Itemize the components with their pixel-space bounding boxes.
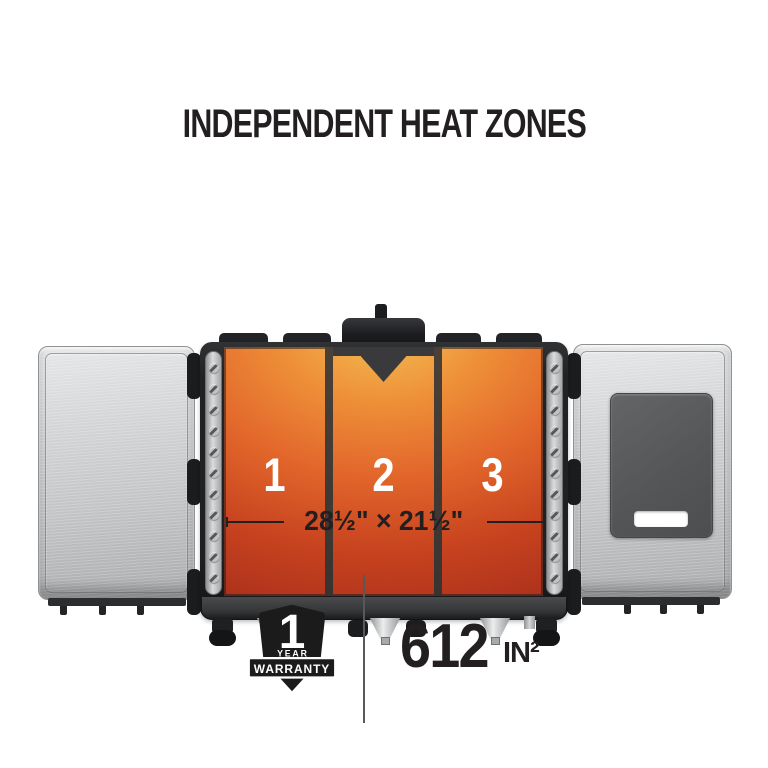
zone-divider — [434, 347, 442, 596]
dimension-tick-right — [543, 517, 545, 527]
griddle-foot — [209, 630, 236, 646]
hinge-tab — [187, 459, 201, 505]
screw-icon — [550, 573, 560, 583]
screw-icon — [209, 426, 219, 436]
screw-icon — [550, 447, 560, 457]
warranty-ribbon-label: WARRANTY — [254, 662, 330, 676]
screw-icon — [209, 489, 219, 499]
screw-icon — [209, 552, 219, 562]
screw-icon — [209, 405, 219, 415]
heat-zone-2: 2 — [333, 347, 434, 596]
page-title: INDEPENDENT HEAT ZONES — [0, 104, 768, 144]
warranty-badge: 1 YEAR WARRANTY — [246, 601, 338, 696]
grease-valve — [366, 618, 404, 639]
screw-icon — [550, 384, 560, 394]
shelf-foot — [697, 605, 704, 614]
screw-icon — [550, 552, 560, 562]
right-shelf-base — [582, 597, 720, 605]
dimension-label: 28½" × 21½" — [0, 506, 768, 537]
zone-number: 1 — [232, 451, 318, 498]
grease-fitting — [524, 616, 535, 629]
zone-number: 2 — [341, 451, 427, 498]
grease-valve-tip — [491, 637, 500, 645]
hinge-tab — [567, 569, 581, 615]
left-shelf-base — [48, 598, 186, 606]
right-screw-rail — [546, 351, 563, 595]
dimension-text: 28½" × 21½" — [304, 506, 463, 537]
left-screw-rail — [205, 351, 222, 595]
screw-icon — [209, 447, 219, 457]
section-divider — [363, 575, 365, 723]
heat-surface: 1 2 3 — [224, 347, 543, 596]
screw-icon — [550, 489, 560, 499]
igniter-knob — [348, 620, 368, 637]
shelf-foot — [624, 605, 631, 614]
screw-icon — [209, 573, 219, 583]
warranty-year-label: YEAR — [277, 648, 309, 658]
page-title-text: INDEPENDENT HEAT ZONES — [182, 104, 585, 144]
screw-icon — [209, 384, 219, 394]
hinge-tab — [567, 353, 581, 399]
dimension-line-right — [487, 521, 544, 523]
screw-icon — [550, 405, 560, 415]
hinge-tab — [187, 353, 201, 399]
shelf-foot — [99, 606, 106, 615]
screw-icon — [209, 363, 219, 373]
chute-bar — [333, 347, 434, 356]
product-infographic: INDEPENDENT HEAT ZONES — [0, 0, 768, 768]
left-side-shelf — [38, 346, 195, 600]
screw-icon — [550, 468, 560, 478]
hinge-tab — [567, 459, 581, 505]
chute-triangle — [361, 356, 407, 382]
heat-zone-1: 1 — [224, 347, 325, 596]
zone-divider — [325, 347, 333, 596]
zone-number: 3 — [450, 451, 536, 498]
screw-icon — [209, 468, 219, 478]
shelf-foot — [60, 606, 67, 615]
shelf-foot — [137, 606, 144, 615]
hinge-tab — [187, 569, 201, 615]
griddle-illustration: 1 2 3 — [0, 150, 768, 500]
heat-zone-3: 3 — [442, 347, 543, 596]
shelf-foot — [660, 605, 667, 614]
v-notch-chute-icon — [333, 347, 434, 382]
cooking-area-unit: IN² — [503, 639, 539, 668]
screw-icon — [550, 426, 560, 436]
cooking-area-value: 612 — [400, 616, 488, 678]
grease-valve-tip — [381, 637, 390, 645]
screw-icon — [550, 363, 560, 373]
left-shelf-panel — [45, 353, 188, 593]
